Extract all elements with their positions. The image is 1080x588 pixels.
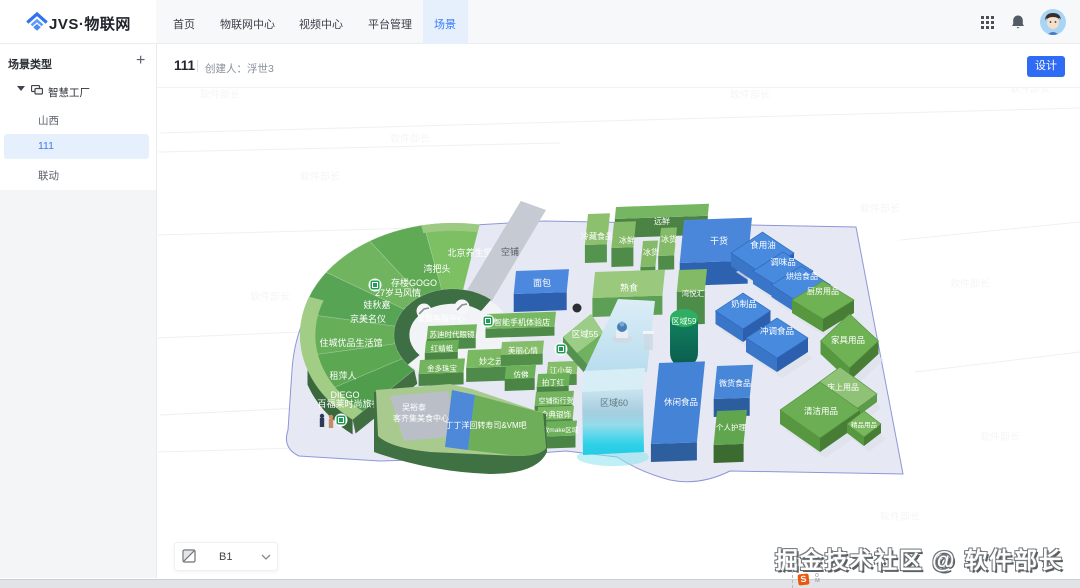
svg-text:软件部长: 软件部长: [860, 202, 900, 215]
svg-text:红蜻蜓: 红蜻蜓: [431, 343, 454, 353]
svg-text:拍丁红: 拍丁红: [542, 377, 565, 387]
svg-text:软件部长: 软件部长: [300, 170, 340, 183]
svg-text:干货: 干货: [710, 235, 728, 246]
svg-text:软件部长: 软件部长: [200, 88, 240, 101]
svg-text:软件部长: 软件部长: [730, 88, 770, 101]
svg-text:休闲食品: 休闲食品: [664, 397, 698, 407]
svg-text:远鲜: 远鲜: [654, 216, 670, 226]
svg-text:租萍人: 租萍人: [329, 371, 356, 381]
svg-text:吴裕泰: 吴裕泰: [402, 402, 426, 412]
svg-text:湾把头: 湾把头: [423, 263, 450, 274]
svg-text:金多珠宝: 金多珠宝: [427, 363, 457, 373]
svg-text:丁丁洋回转寿司&VM吧: 丁丁洋回转寿司&VM吧: [445, 420, 526, 430]
svg-text:个人护理: 个人护理: [716, 422, 746, 432]
svg-text:空铺: 空铺: [501, 246, 519, 257]
svg-text:苏迪时代眼镜: 苏迪时代眼镜: [430, 329, 475, 339]
svg-text:清洁用品: 清洁用品: [804, 406, 838, 416]
svg-text:食用油: 食用油: [750, 240, 776, 250]
svg-text:存楼GOGO: 存楼GOGO: [391, 277, 437, 288]
svg-text:软件部长: 软件部长: [250, 290, 290, 303]
svg-text:北京养生堂: 北京养生堂: [447, 247, 492, 258]
svg-text:仿佛: 仿佛: [514, 369, 529, 379]
svg-text:妙之云: 妙之云: [479, 356, 503, 366]
svg-text:奶制品: 奶制品: [731, 299, 757, 309]
svg-text:微货食品: 微货食品: [719, 378, 751, 388]
svg-text:美丽心情: 美丽心情: [508, 345, 538, 355]
svg-text:聚䨻客服中心: 聚䨻客服中心: [417, 313, 465, 323]
svg-text:住城优品生活馆: 住城优品生活馆: [319, 337, 382, 348]
svg-text:软件部长: 软件部长: [950, 277, 990, 290]
svg-text:软件部长: 软件部长: [880, 510, 920, 523]
svg-text:百福莱时尚旅衣: 百福莱时尚旅衣: [317, 398, 380, 409]
svg-text:区域60: 区域60: [600, 397, 628, 408]
svg-text:京美名仪: 京美名仪: [350, 313, 386, 324]
svg-text:客齐集美食中心: 客齐集美食中心: [393, 413, 449, 423]
svg-text:调味品: 调味品: [770, 257, 796, 267]
svg-text:湾悦汇: 湾悦汇: [682, 288, 705, 298]
svg-text:熟食: 熟食: [620, 282, 638, 293]
svg-text:冰货: 冰货: [643, 247, 659, 257]
svg-text:区域55: 区域55: [572, 329, 599, 339]
svg-text:娃秋嘉: 娃秋嘉: [363, 299, 390, 310]
svg-text:智能手机体验店: 智能手机体验店: [494, 317, 550, 327]
svg-text:冲调食品: 冲调食品: [760, 326, 794, 336]
svg-text:厨房用品: 厨房用品: [807, 286, 839, 296]
svg-text:家具用品: 家具用品: [831, 335, 865, 345]
svg-text:冰货: 冰货: [661, 234, 677, 244]
svg-text:烘焙食品: 烘焙食品: [786, 271, 818, 281]
svg-text:软件部长: 软件部长: [390, 132, 430, 145]
svg-text:冷藏食品: 冷藏食品: [581, 231, 613, 241]
svg-text:软件部长: 软件部长: [980, 430, 1020, 443]
svg-text:冰鲜: 冰鲜: [619, 235, 635, 245]
svg-text:面包: 面包: [533, 277, 551, 288]
svg-text:27岁马风情: 27岁马风情: [375, 287, 421, 298]
svg-text:精品用品: 精品用品: [851, 420, 877, 429]
svg-text:区域59: 区域59: [672, 316, 697, 326]
svg-text:空铺街行贺: 空铺街行贺: [539, 396, 574, 405]
